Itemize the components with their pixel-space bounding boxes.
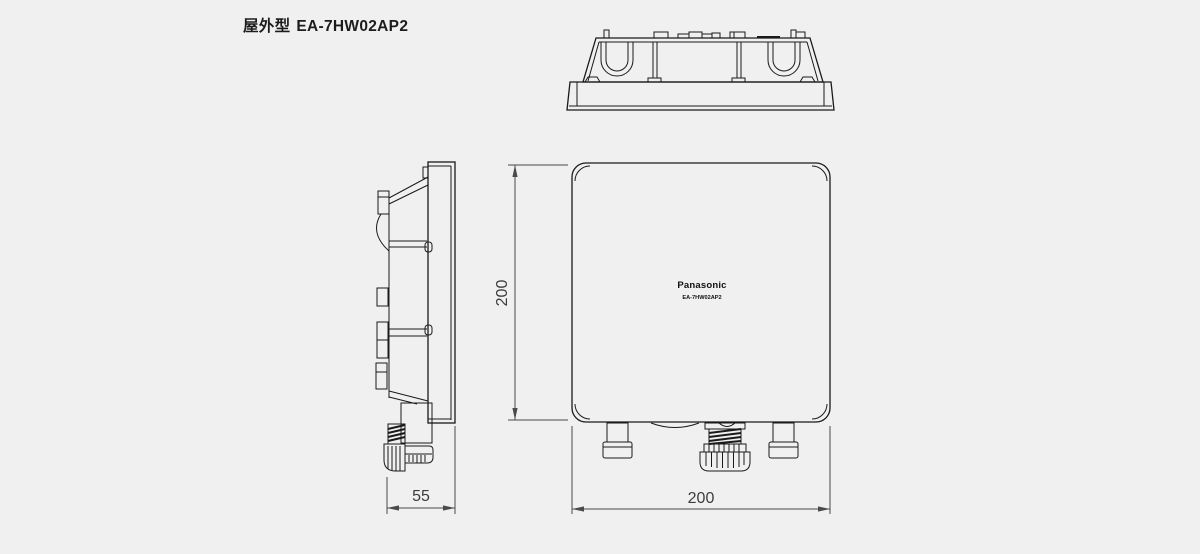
dimension-front-width: 200 — [572, 426, 830, 514]
front-bottom-arc — [651, 423, 699, 428]
dim-label-width: 200 — [688, 490, 715, 507]
front-view-outline — [572, 163, 830, 422]
front-model-text: EA-7HW02AP2 — [682, 295, 721, 301]
dim-label-depth: 55 — [412, 488, 430, 505]
front-logo-text: Panasonic — [677, 280, 726, 291]
side-view-mount-tabs — [376, 191, 389, 389]
dim-label-height: 200 — [494, 280, 511, 307]
side-view-cable-gland — [384, 403, 433, 471]
side-view — [376, 162, 455, 471]
side-view-rails — [389, 241, 432, 336]
side-view-housing — [389, 177, 428, 398]
drawing-canvas: 屋外型EA-7HW02AP2 — [0, 0, 1200, 554]
top-view-ribs — [648, 42, 745, 82]
technical-drawing: Panasonic EA-7HW02AP2 — [0, 0, 1200, 554]
top-view-tabs — [604, 30, 805, 39]
antenna-connector-left — [603, 423, 632, 458]
dimension-front-height: 200 — [494, 165, 568, 420]
top-view — [567, 30, 834, 110]
mount-slot-left — [601, 42, 633, 76]
antenna-connector-right — [769, 423, 798, 458]
mount-slot-right — [768, 42, 800, 76]
front-view-inner-corners — [575, 166, 827, 419]
front-view: Panasonic EA-7HW02AP2 — [572, 163, 830, 471]
front-cable-gland — [700, 423, 750, 471]
